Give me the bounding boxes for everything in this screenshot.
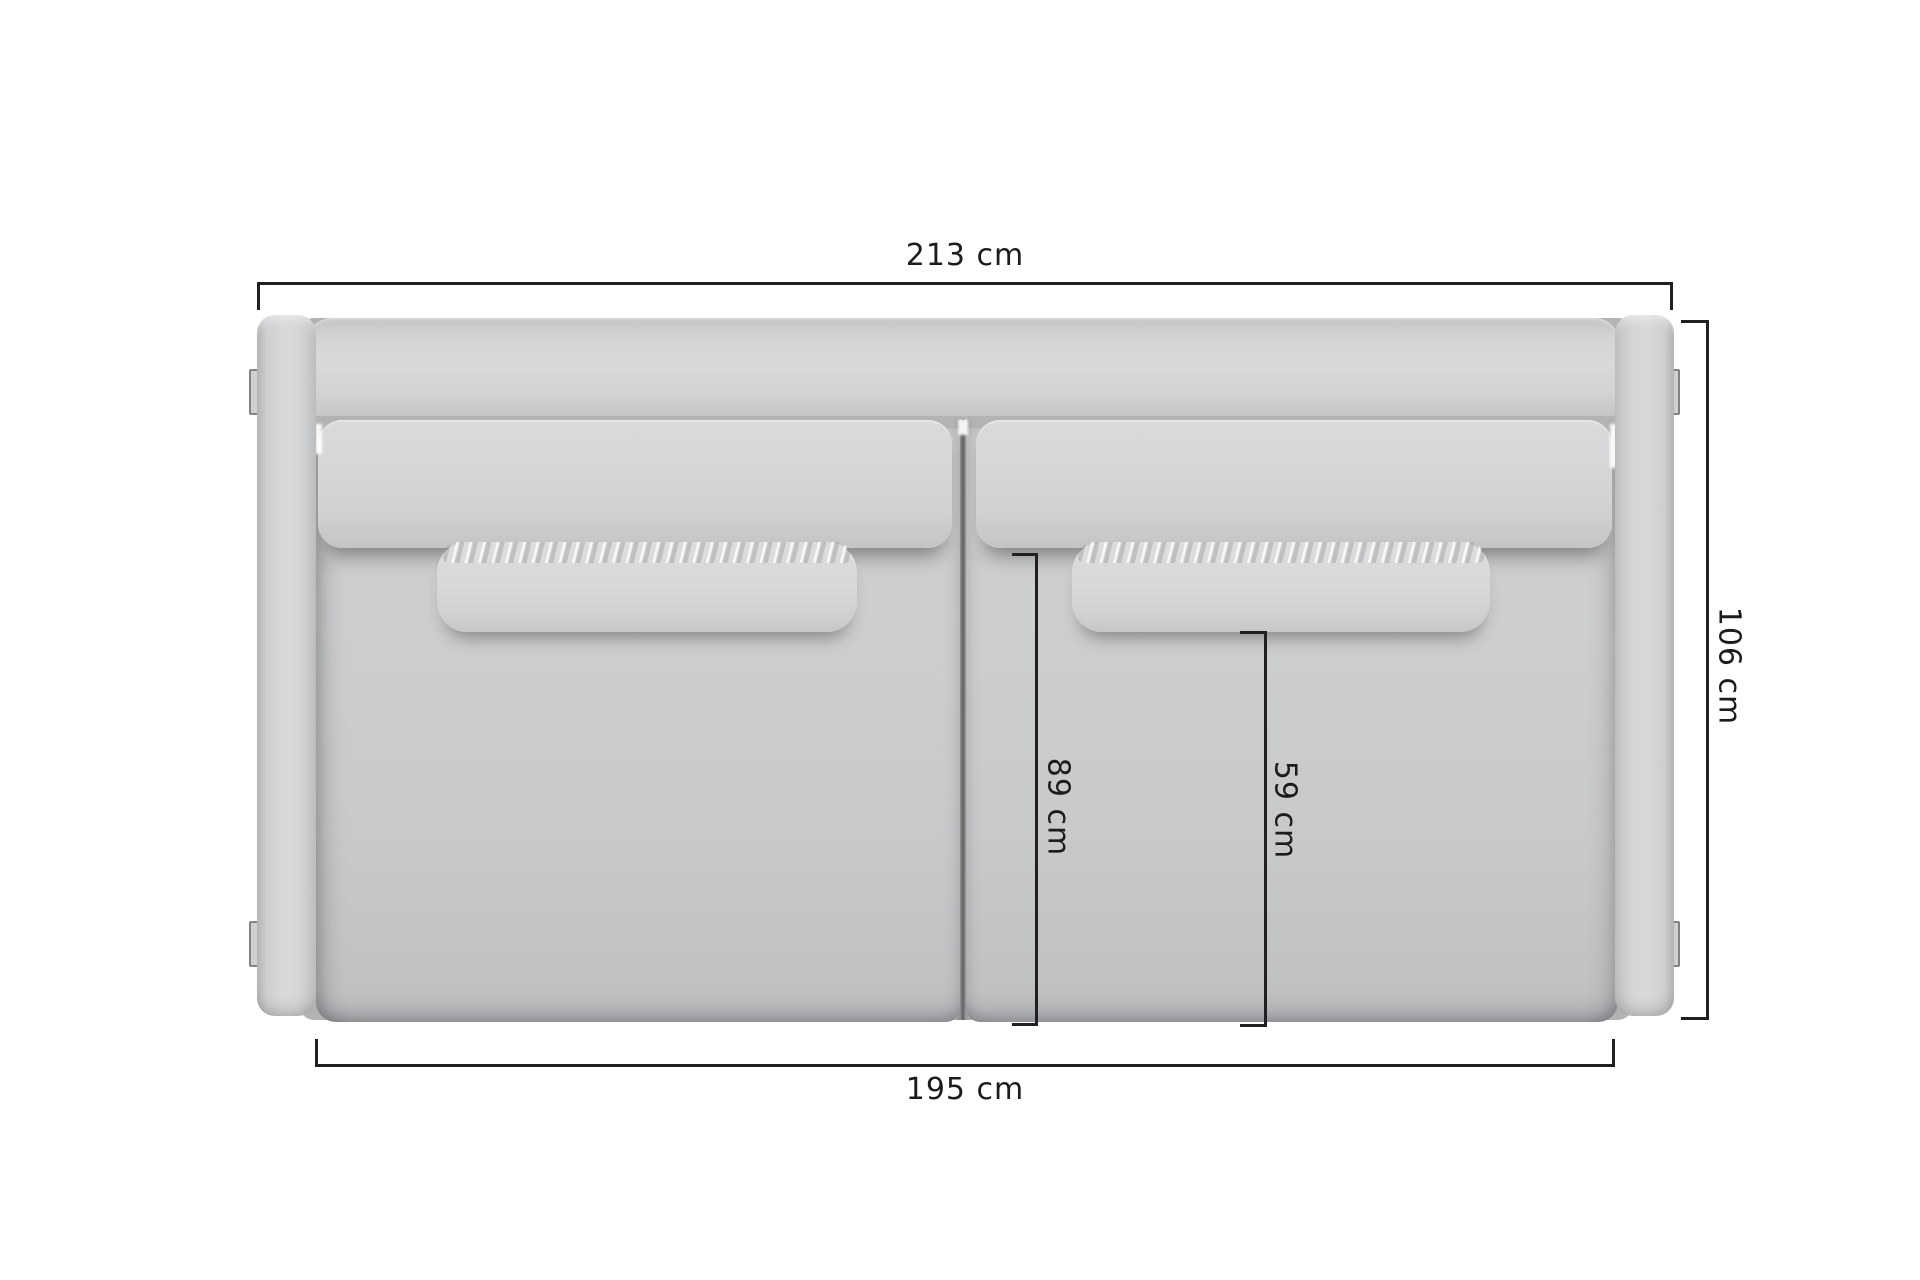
dim-label-seat-width: 195 cm	[315, 1072, 1615, 1107]
dim-label-total-depth: 106 cm	[1712, 607, 1747, 726]
dim-tick	[1240, 1024, 1267, 1027]
pillow-wrinkle-texture	[1078, 542, 1484, 563]
right-headrest-pillow	[1072, 542, 1490, 632]
left-back-cushion	[318, 420, 952, 548]
dim-line	[1706, 320, 1709, 1020]
dim-line	[1035, 553, 1038, 1026]
dim-tick	[1670, 282, 1673, 310]
right-armrest	[1615, 315, 1674, 1016]
dim-tick	[257, 282, 260, 310]
sofa-dimension-diagram: 213 cm 106 cm 195 cm 89 cm 59 cm	[0, 0, 1920, 1280]
seam-highlight-left	[315, 424, 322, 454]
seam-highlight-center	[958, 419, 968, 435]
dim-label-seat-depth-pillow: 59 cm	[1268, 761, 1303, 859]
dim-tick	[1012, 1023, 1038, 1026]
pillow-wrinkle-texture	[443, 542, 851, 563]
dim-tick	[315, 1039, 318, 1067]
dim-tick	[1612, 1039, 1615, 1067]
dim-tick	[1240, 631, 1267, 634]
backrest-frame	[306, 318, 1620, 416]
dim-line	[315, 1064, 1615, 1067]
dim-line	[257, 282, 1673, 285]
right-back-cushion	[976, 420, 1612, 548]
left-headrest-pillow	[437, 542, 857, 632]
dim-tick	[1681, 320, 1709, 323]
dim-label-total-width: 213 cm	[257, 238, 1673, 273]
dim-tick	[1681, 1017, 1709, 1020]
left-armrest	[257, 315, 316, 1016]
dim-label-seat-depth-backrest: 89 cm	[1041, 758, 1076, 856]
dim-tick	[1012, 553, 1038, 556]
